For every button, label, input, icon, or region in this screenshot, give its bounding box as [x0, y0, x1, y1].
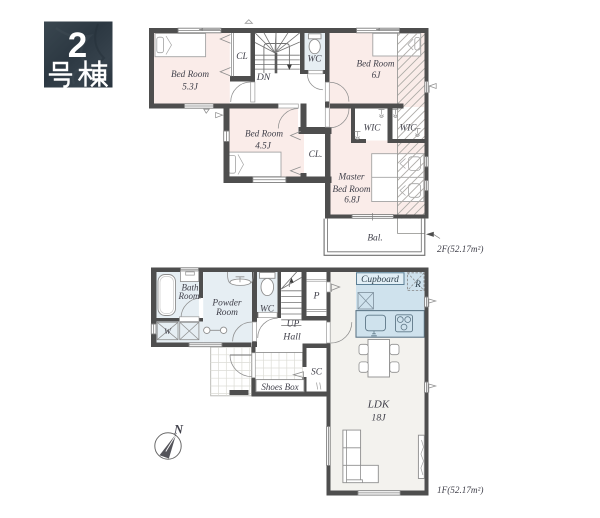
svg-text:DN: DN: [256, 72, 271, 83]
svg-text:Shoes Box: Shoes Box: [261, 382, 298, 392]
svg-text:WC: WC: [260, 305, 275, 315]
svg-text:6.8J: 6.8J: [344, 195, 360, 205]
svg-text:Powder: Powder: [211, 299, 242, 309]
svg-text:18J: 18J: [371, 413, 386, 424]
svg-text:CL: CL: [236, 52, 247, 62]
svg-text:Bed Room: Bed Room: [171, 69, 209, 79]
svg-text:SC: SC: [311, 368, 323, 378]
svg-text:Bed Room: Bed Room: [356, 59, 394, 69]
svg-text:2: 2: [68, 26, 87, 65]
svg-text:WIC: WIC: [400, 123, 418, 133]
svg-text:5.3J: 5.3J: [182, 82, 198, 92]
svg-text:R: R: [414, 280, 421, 290]
svg-text:N: N: [173, 423, 184, 437]
svg-text:4.5J: 4.5J: [255, 141, 271, 151]
svg-text:UP: UP: [287, 319, 300, 330]
svg-text:2F(52.17m²): 2F(52.17m²): [437, 244, 483, 254]
svg-text:Master: Master: [337, 172, 364, 182]
svg-text:Hall: Hall: [282, 332, 301, 343]
svg-text:6J: 6J: [372, 70, 382, 80]
svg-text:LDK: LDK: [367, 399, 390, 411]
svg-text:WIC: WIC: [364, 123, 382, 133]
svg-text:Bed Room: Bed Room: [332, 184, 370, 194]
svg-text:P: P: [313, 291, 320, 302]
svg-text:WC: WC: [307, 55, 322, 65]
svg-text:Room: Room: [215, 308, 238, 318]
svg-text:W: W: [164, 327, 172, 336]
svg-text:CL.: CL.: [309, 150, 323, 160]
svg-text:Bed Room: Bed Room: [245, 129, 283, 139]
svg-text:Room: Room: [178, 291, 200, 301]
svg-text:1F(52.17m²): 1F(52.17m²): [437, 485, 483, 495]
svg-text:Cupboard: Cupboard: [361, 275, 399, 285]
svg-text:Bal.: Bal.: [367, 234, 382, 244]
